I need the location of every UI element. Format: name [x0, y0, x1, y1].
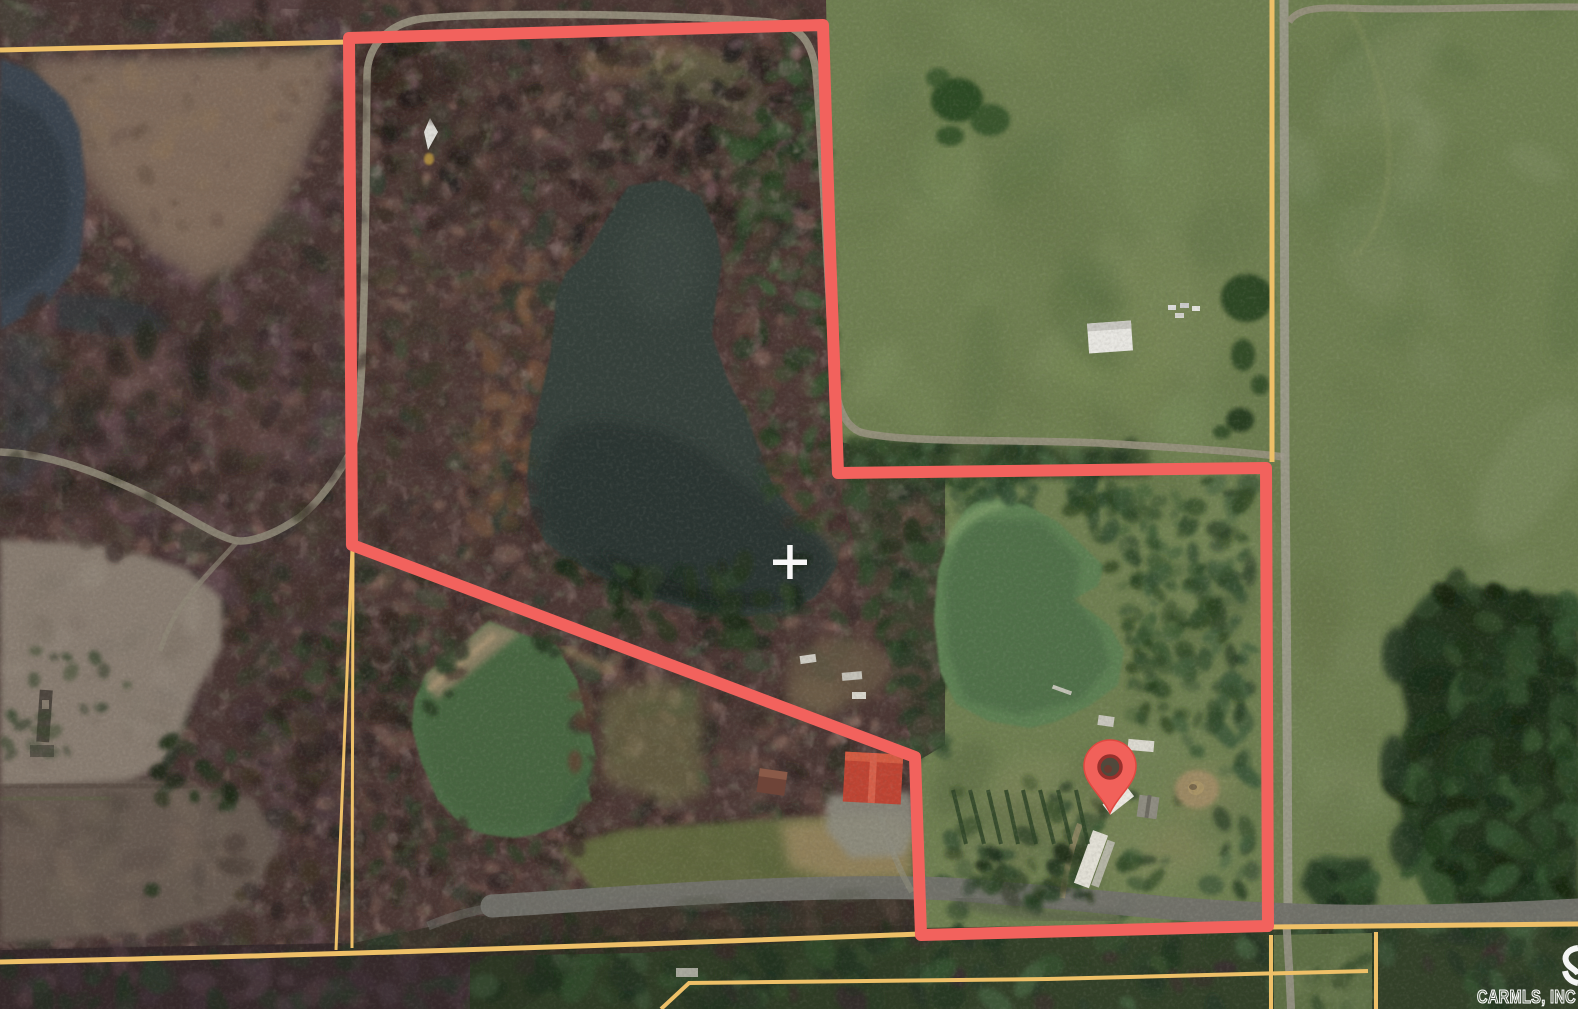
svg-text:CARMLS, INC: CARMLS, INC — [1477, 987, 1576, 1007]
